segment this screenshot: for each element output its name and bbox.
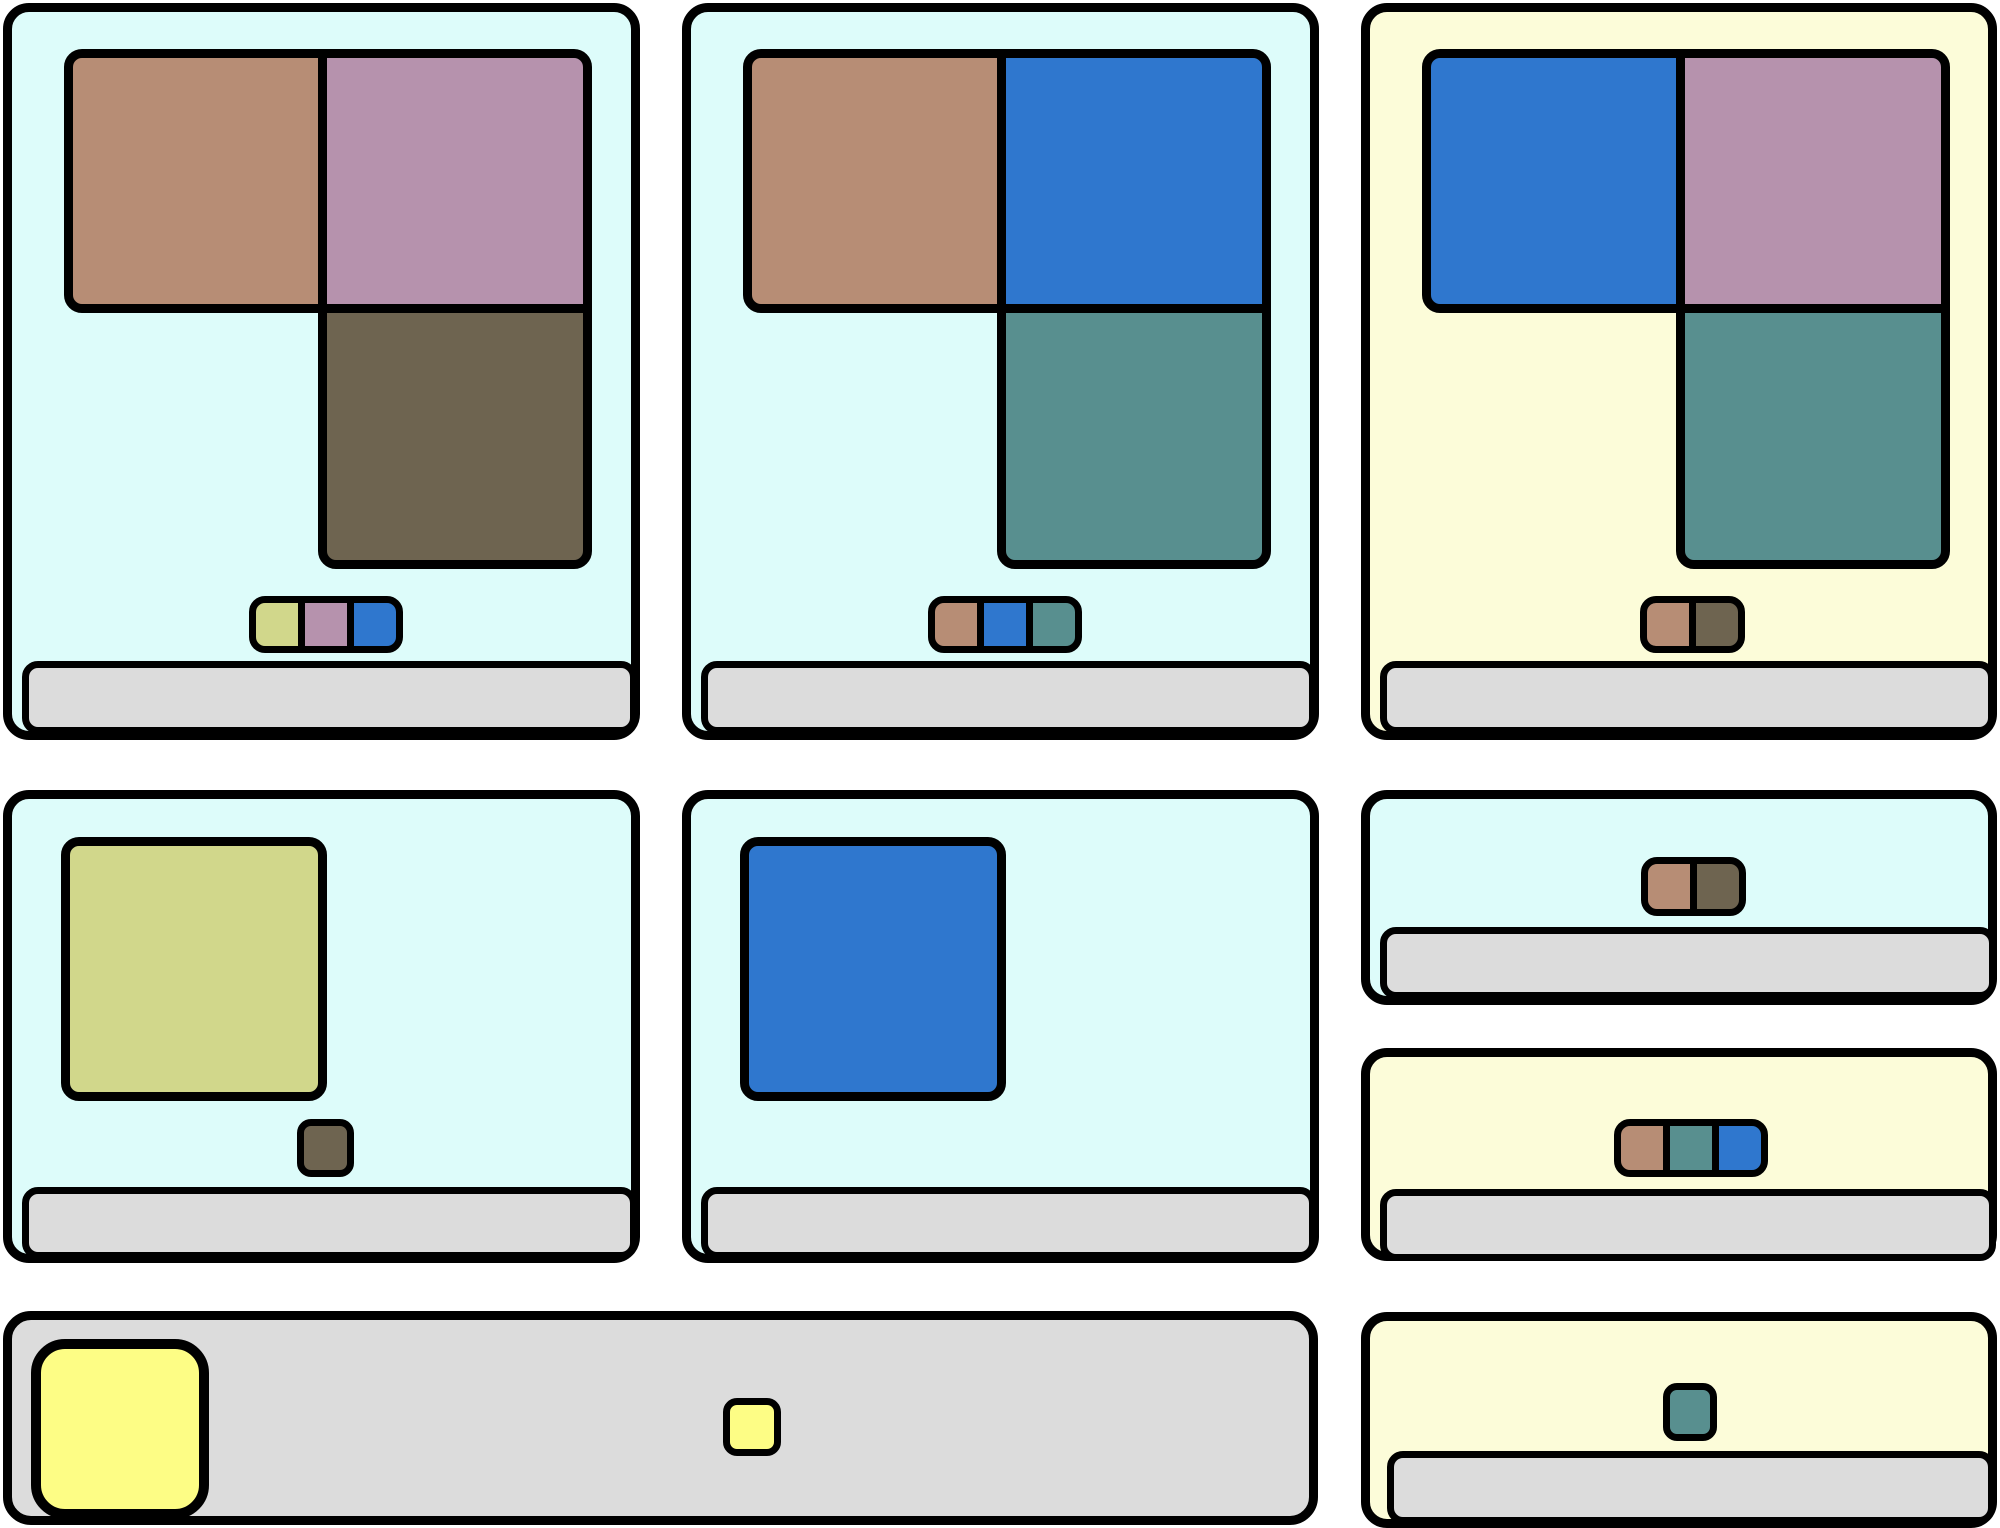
chip-mauve[interactable] [298, 596, 354, 653]
chip-teal[interactable] [1663, 1383, 1717, 1441]
block-bright-yellow[interactable] [31, 1339, 209, 1519]
block-blue[interactable] [997, 49, 1271, 313]
card-row1-col1 [3, 3, 640, 740]
canvas [0, 0, 2000, 1528]
block-teal[interactable] [997, 304, 1271, 569]
block-brown[interactable] [743, 49, 1006, 313]
block-olive[interactable] [318, 304, 592, 569]
chip-brown[interactable] [928, 596, 984, 653]
block-blue[interactable] [740, 837, 1006, 1101]
tray-bottom [3, 1311, 1318, 1525]
block-mauve[interactable] [318, 49, 592, 313]
slot-bar[interactable] [701, 1187, 1316, 1259]
slot-bar[interactable] [1380, 927, 1996, 999]
chip-olive[interactable] [297, 1119, 354, 1177]
card-row2-col1 [3, 790, 640, 1263]
slot-bar[interactable] [701, 661, 1316, 734]
card-row2-col3-bottom [1361, 1048, 1997, 1261]
card-row2-col2 [682, 790, 1319, 1263]
card-row3-col3 [1361, 1312, 1997, 1528]
card-row1-col3 [1361, 3, 1997, 740]
chip-blue[interactable] [347, 596, 403, 653]
chip-teal[interactable] [1026, 596, 1082, 653]
chip-teal[interactable] [1663, 1119, 1719, 1177]
chip-brown[interactable] [1614, 1119, 1670, 1177]
chip-olive[interactable] [1689, 596, 1745, 653]
slot-bar[interactable] [1387, 1451, 1995, 1524]
chip-blue[interactable] [977, 596, 1033, 653]
block-blue[interactable] [1422, 49, 1685, 313]
block-teal[interactable] [1676, 304, 1950, 569]
chip-yellow-green[interactable] [249, 596, 305, 653]
chip-olive[interactable] [1690, 857, 1746, 916]
block-yellow-green[interactable] [61, 837, 327, 1101]
card-row2-col3-top [1361, 790, 1997, 1005]
chip-bright-yellow[interactable] [723, 1398, 781, 1456]
slot-bar[interactable] [22, 661, 637, 734]
slot-bar[interactable] [1380, 661, 1995, 734]
card-row1-col2 [682, 3, 1319, 740]
chip-brown[interactable] [1640, 596, 1696, 653]
slot-bar[interactable] [22, 1187, 637, 1259]
block-brown[interactable] [64, 49, 327, 313]
slot-bar[interactable] [1380, 1189, 1996, 1261]
block-mauve[interactable] [1676, 49, 1950, 313]
chip-brown[interactable] [1641, 857, 1697, 916]
chip-blue[interactable] [1712, 1119, 1768, 1177]
